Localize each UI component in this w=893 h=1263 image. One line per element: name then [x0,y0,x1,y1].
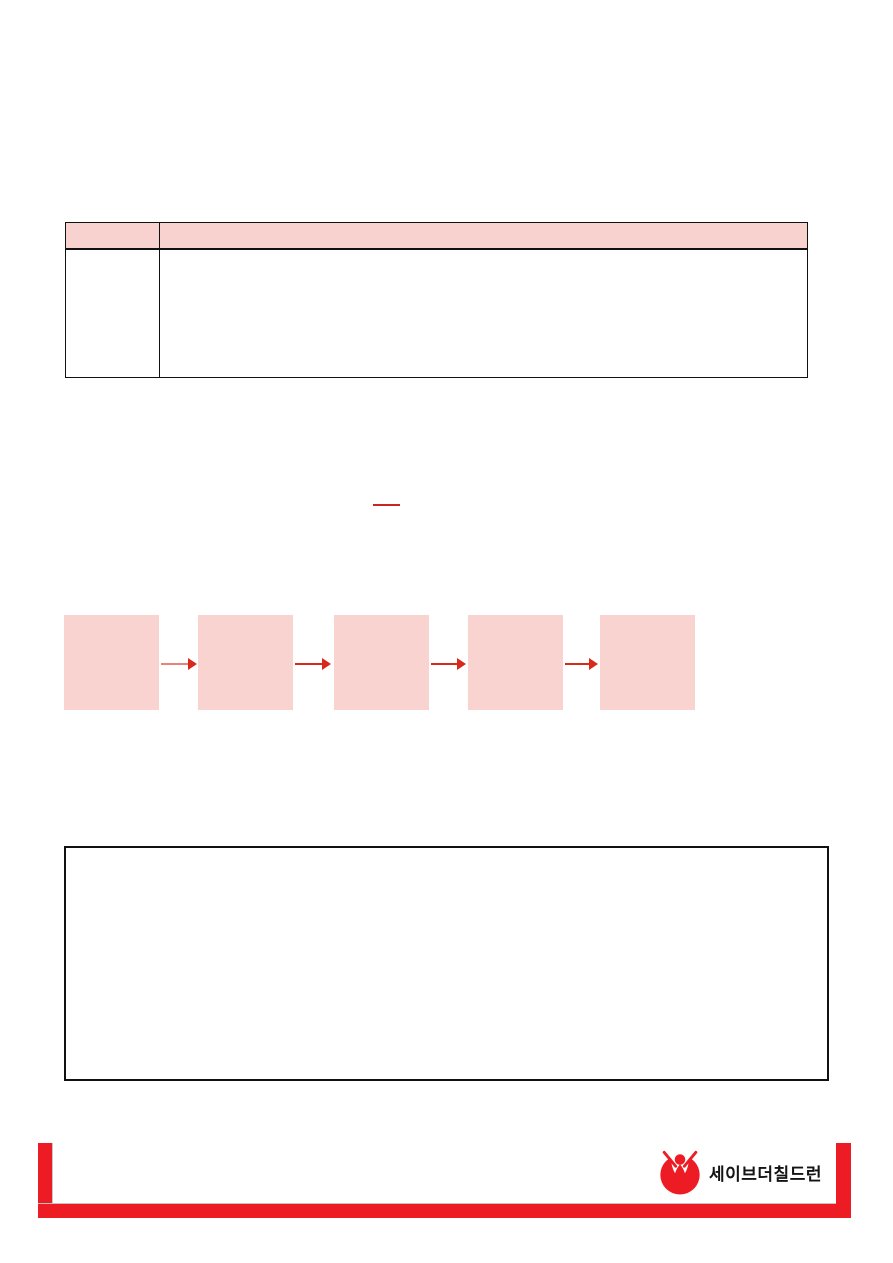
table-header-cell-label [66,223,160,249]
table-row [66,249,808,378]
footer-frame-bottom-bar [38,1203,851,1218]
flow-step-3 [334,615,429,710]
table-header-cell-content [160,223,808,249]
table-cell-content [160,249,808,378]
arrow-stem [431,663,457,665]
flow-step-4 [468,615,563,710]
arrow-stem [295,663,322,665]
arrow-head [589,658,598,670]
document-page: 세이브더칠드런 [0,0,893,1263]
arrow-head [457,658,466,670]
save-the-children-logo: 세이브더칠드런 [656,1147,826,1197]
flow-step-5 [600,615,695,710]
arrow-head [188,658,197,670]
right-arrow-icon [295,658,331,670]
arrow-stem [161,663,188,665]
red-underline [373,504,400,506]
notes-box [64,846,829,1081]
right-arrow-icon [431,658,466,670]
table-header-row [66,223,808,249]
table-cell-label [66,249,160,378]
flow-step-2 [198,615,293,710]
arrow-head [322,658,331,670]
footer-frame-right-bar [836,1143,851,1218]
flow-step-1 [64,615,159,710]
child-in-circle-icon [656,1148,704,1196]
right-arrow-icon [565,658,598,670]
info-table [65,222,808,378]
right-arrow-icon [161,658,197,670]
arrow-stem [565,663,589,665]
logo-wordmark: 세이브더칠드런 [709,1160,822,1185]
